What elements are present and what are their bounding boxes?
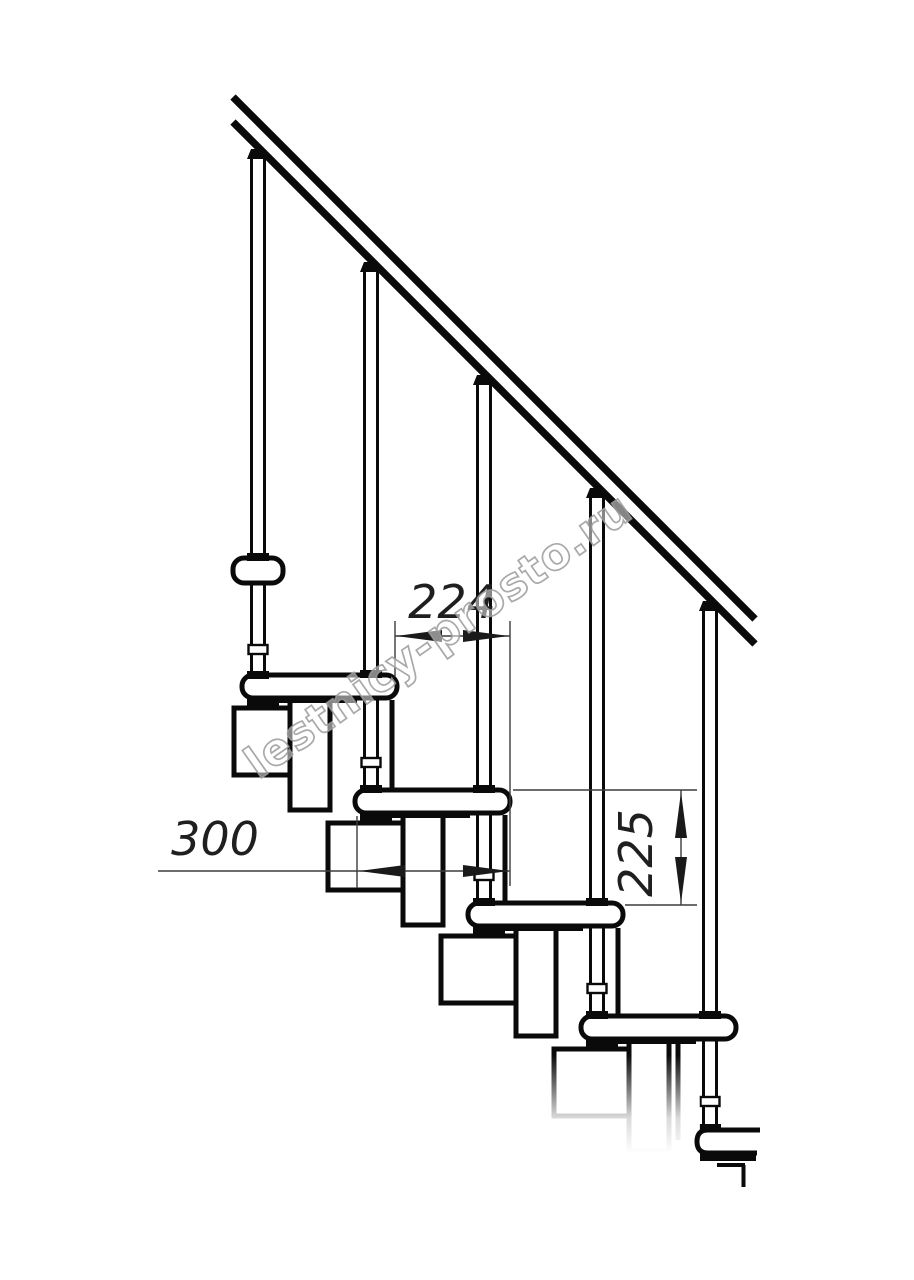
tread-mount-tab bbox=[586, 1037, 618, 1048]
tread-mount-tab bbox=[247, 696, 279, 707]
tread-mount-tab bbox=[473, 924, 505, 935]
baluster-pad bbox=[586, 1011, 608, 1019]
baluster-pad bbox=[247, 553, 269, 561]
module-box bbox=[328, 823, 403, 890]
baluster-pad bbox=[699, 1011, 721, 1019]
tread-5-partial bbox=[697, 1130, 760, 1153]
pole-collar bbox=[588, 984, 607, 993]
tread-2 bbox=[355, 790, 510, 813]
dimension-tread-length-value: 300 bbox=[171, 812, 259, 866]
baluster-pad bbox=[247, 671, 269, 679]
handrail bbox=[233, 97, 755, 644]
watermark-text: lestnicy-prosto.ru bbox=[236, 483, 642, 789]
tread-mount-tab bbox=[360, 811, 392, 822]
bottom-fade bbox=[520, 1055, 700, 1195]
tread-shadow-strip bbox=[700, 1152, 756, 1161]
tread-3 bbox=[468, 903, 623, 926]
tread-4 bbox=[581, 1016, 736, 1039]
dimension-rise-value: 225 bbox=[609, 809, 663, 897]
tread-upper-flight bbox=[233, 558, 283, 583]
baluster-pad bbox=[586, 898, 608, 906]
arrowhead-down bbox=[675, 857, 687, 903]
baluster-pad bbox=[360, 785, 382, 793]
baluster-4 bbox=[586, 488, 608, 1018]
module-box bbox=[441, 936, 516, 1003]
tread-lowest-partial bbox=[697, 1130, 760, 1187]
baluster-1 bbox=[247, 149, 269, 679]
baluster-pad bbox=[473, 898, 495, 906]
baluster-pad bbox=[473, 785, 495, 793]
handrail-upper-line bbox=[233, 97, 755, 619]
pole-collar bbox=[362, 758, 381, 767]
arrowhead-up bbox=[675, 792, 687, 838]
pole-collar bbox=[249, 645, 268, 654]
staircase-drawing: 224 300 225 lestnicy-prosto.ru bbox=[0, 0, 914, 1280]
baluster-5 bbox=[699, 601, 721, 1131]
module-box bbox=[403, 813, 443, 925]
pole-collar bbox=[701, 1097, 720, 1106]
drawing-page: 224 300 225 lestnicy-prosto.ru bbox=[0, 0, 914, 1280]
module-box bbox=[516, 926, 556, 1036]
